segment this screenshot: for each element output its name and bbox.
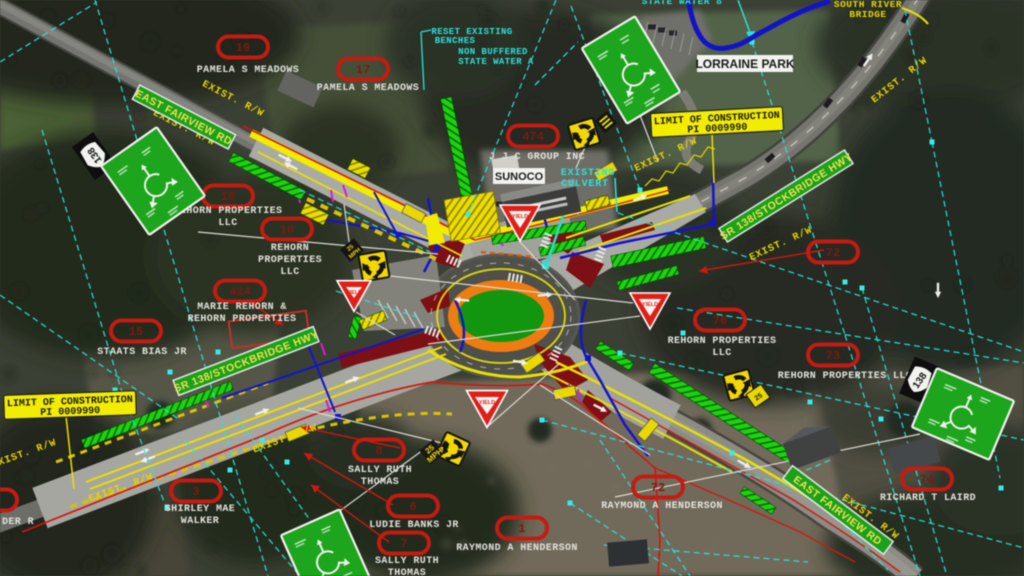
svg-text:10: 10 [280, 223, 294, 237]
svg-text:REHORN PROPERTIES LLC: REHORN PROPERTIES LLC [778, 371, 912, 382]
svg-text:424: 424 [229, 285, 251, 299]
svg-text:RAYMOND A HENDERSON: RAYMOND A HENDERSON [456, 543, 578, 554]
svg-text:REHORN PROPERTIES: REHORN PROPERTIES [668, 336, 777, 347]
svg-text:LORRAINE PARK: LORRAINE PARK [695, 57, 794, 71]
svg-text:CULVERT: CULVERT [561, 179, 609, 190]
svg-text:STATE WATER A: STATE WATER A [458, 57, 534, 67]
svg-text:RICHARD T LAIRD: RICHARD T LAIRD [880, 493, 976, 504]
svg-text:7: 7 [400, 537, 407, 551]
svg-text:19: 19 [236, 41, 250, 55]
svg-text:STATE WATER 8: STATE WATER 8 [642, 0, 723, 7]
svg-text:WALKER: WALKER [181, 516, 219, 527]
svg-text:STAATS BIAS JR: STAATS BIAS JR [97, 347, 187, 358]
svg-text:YIELD: YIELD [346, 290, 362, 296]
svg-text:76: 76 [713, 314, 727, 328]
svg-text:MARIE REHORN &: MARIE REHORN & [197, 302, 287, 313]
svg-text:EXISTING: EXISTING [561, 168, 615, 179]
svg-text:LLC: LLC [712, 348, 731, 359]
svg-text:72: 72 [651, 481, 665, 495]
svg-text:DER R: DER R [2, 517, 34, 528]
svg-text:3: 3 [192, 485, 199, 499]
svg-text:474: 474 [522, 130, 544, 144]
svg-text:8: 8 [375, 444, 382, 458]
svg-text:SALLY RUTH: SALLY RUTH [375, 556, 439, 567]
svg-text:18: 18 [221, 190, 235, 204]
svg-text:SHIRLEY MAE: SHIRLEY MAE [165, 504, 235, 515]
svg-text:REHORN: REHORN [271, 243, 309, 254]
svg-text:PAMELA S MEADOWS: PAMELA S MEADOWS [197, 65, 299, 76]
svg-text:NON BUFFERED: NON BUFFERED [458, 47, 528, 57]
svg-text:LLC: LLC [280, 267, 299, 278]
svg-text:73: 73 [826, 349, 840, 363]
svg-text:YIELD: YIELD [512, 214, 528, 220]
svg-text:RAYMOND A HENDERSON: RAYMOND A HENDERSON [601, 501, 723, 512]
svg-text:LUDIE BANKS JR: LUDIE BANKS JR [369, 520, 459, 531]
svg-text:SALLY RUTH: SALLY RUTH [348, 465, 412, 476]
svg-text:LLC: LLC [218, 218, 237, 229]
svg-text:PI 0009990: PI 0009990 [40, 406, 100, 419]
svg-text:72: 72 [826, 246, 840, 260]
svg-text:15: 15 [129, 325, 143, 339]
svg-text:17: 17 [356, 63, 370, 77]
svg-text:YIELD: YIELD [479, 400, 495, 406]
svg-text:SUNOCO: SUNOCO [495, 171, 544, 183]
svg-text:1: 1 [518, 522, 525, 536]
svg-text:REHORN PROPERTIES: REHORN PROPERTIES [188, 314, 297, 325]
svg-text:74: 74 [920, 473, 934, 487]
svg-text:PROPERTIES: PROPERTIES [258, 255, 322, 266]
svg-text:J J C GROUP INC: J J C GROUP INC [489, 152, 585, 163]
svg-text:THOMAS: THOMAS [388, 568, 426, 576]
svg-text:BENCHES: BENCHES [435, 36, 476, 46]
svg-text:THOMAS: THOMAS [361, 477, 399, 488]
svg-text:BRIDGE: BRIDGE [849, 9, 886, 20]
svg-text:YIELD: YIELD [642, 302, 658, 308]
svg-text:6: 6 [409, 500, 416, 514]
svg-text:PAMELA S MEADOWS: PAMELA S MEADOWS [317, 83, 419, 94]
